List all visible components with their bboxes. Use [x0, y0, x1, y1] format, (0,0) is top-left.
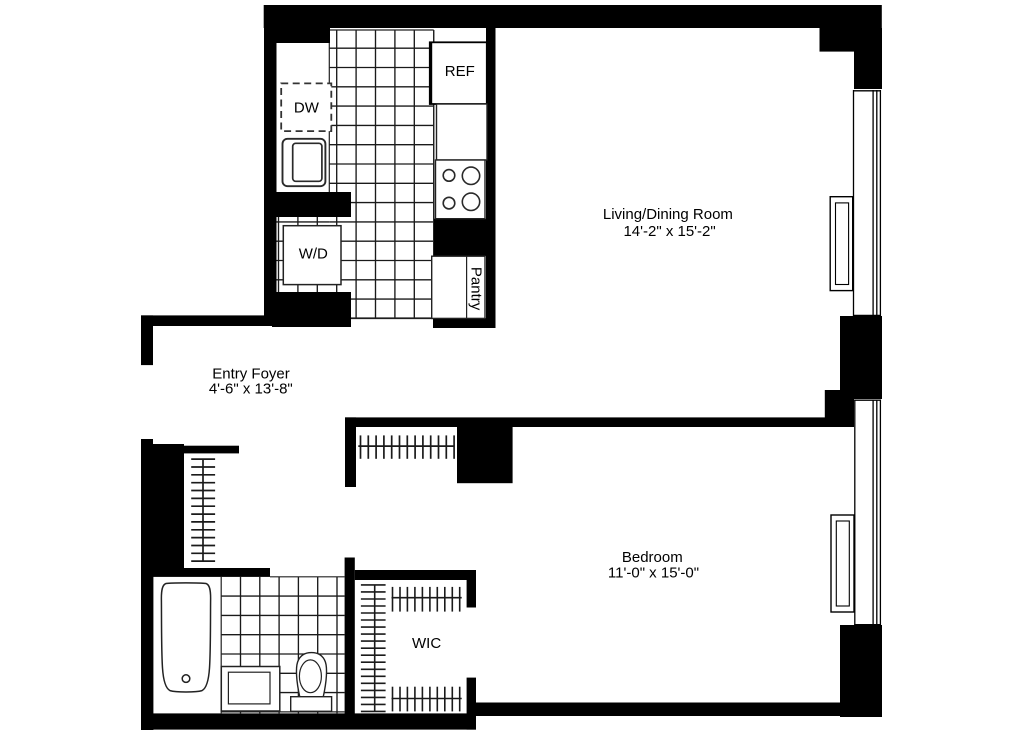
svg-text:DW: DW	[294, 100, 320, 117]
svg-text:WIC: WIC	[412, 635, 441, 652]
svg-text:4'-6" x 13'-8": 4'-6" x 13'-8"	[209, 381, 293, 398]
svg-text:REF: REF	[445, 63, 475, 80]
svg-text:Living/Dining Room: Living/Dining Room	[603, 206, 733, 223]
svg-text:14'-2" x 15'-2": 14'-2" x 15'-2"	[623, 223, 715, 240]
svg-text:Pantry: Pantry	[467, 267, 484, 311]
svg-text:11'-0" x 15'-0": 11'-0" x 15'-0"	[608, 564, 699, 581]
svg-text:W/D: W/D	[299, 245, 328, 262]
